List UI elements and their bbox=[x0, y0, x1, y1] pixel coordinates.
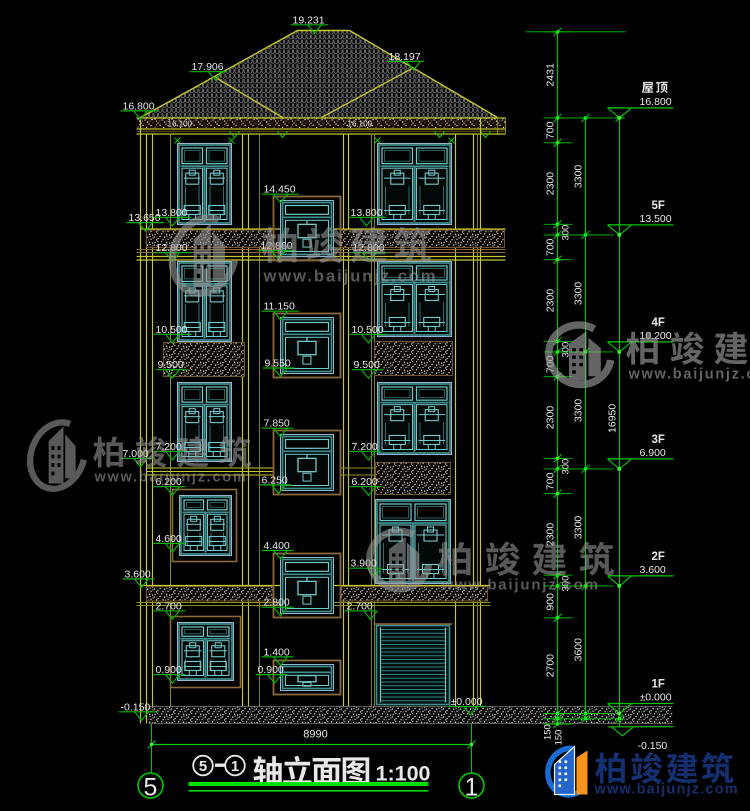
svg-text:3300: 3300 bbox=[573, 165, 585, 189]
svg-text:-0.150: -0.150 bbox=[638, 740, 668, 752]
svg-text:2F: 2F bbox=[652, 551, 665, 563]
svg-text:2431: 2431 bbox=[545, 63, 557, 87]
svg-text:3600: 3600 bbox=[573, 638, 585, 662]
svg-text:700: 700 bbox=[545, 472, 557, 490]
svg-text:16.100: 16.100 bbox=[348, 120, 373, 129]
svg-text:2300: 2300 bbox=[545, 289, 557, 313]
svg-text:3F: 3F bbox=[652, 434, 665, 446]
svg-text:3300: 3300 bbox=[573, 516, 585, 540]
svg-text:6.900: 6.900 bbox=[640, 447, 666, 459]
svg-text:700: 700 bbox=[545, 121, 557, 139]
svg-text:900: 900 bbox=[545, 593, 557, 611]
svg-text:5F: 5F bbox=[652, 200, 665, 212]
svg-text:www.baijunjz.com: www.baijunjz.com bbox=[441, 577, 600, 594]
svg-text:3300: 3300 bbox=[573, 399, 585, 423]
svg-text:2300: 2300 bbox=[545, 172, 557, 196]
svg-text:150: 150 bbox=[543, 724, 554, 740]
svg-text:300: 300 bbox=[561, 225, 572, 241]
svg-text:1: 1 bbox=[231, 758, 239, 775]
svg-text:150: 150 bbox=[554, 730, 565, 746]
svg-text:700: 700 bbox=[545, 238, 557, 256]
svg-text:1: 1 bbox=[465, 774, 479, 802]
svg-text:3300: 3300 bbox=[573, 282, 585, 306]
svg-text:16.100: 16.100 bbox=[168, 120, 193, 129]
svg-text:www.baijunjz.com: www.baijunjz.com bbox=[263, 268, 438, 286]
svg-text:16950: 16950 bbox=[607, 404, 619, 433]
svg-text:13.500: 13.500 bbox=[640, 213, 672, 225]
svg-text:300: 300 bbox=[561, 459, 572, 475]
svg-text:2700: 2700 bbox=[545, 654, 557, 678]
svg-text:3.600: 3.600 bbox=[640, 564, 666, 576]
svg-text:www.baijunjz.com: www.baijunjz.com bbox=[594, 782, 739, 798]
svg-text:1F: 1F bbox=[652, 679, 665, 691]
svg-text:2300: 2300 bbox=[545, 406, 557, 430]
svg-text:www.baijunjz.com: www.baijunjz.com bbox=[94, 470, 248, 486]
svg-text:±0.000: ±0.000 bbox=[640, 692, 672, 704]
svg-text:www.baijunjz.com: www.baijunjz.com bbox=[628, 367, 750, 383]
svg-text:1:100: 1:100 bbox=[376, 762, 431, 786]
svg-text:8990: 8990 bbox=[303, 729, 327, 741]
svg-text:16.800: 16.800 bbox=[640, 96, 672, 108]
svg-text:5: 5 bbox=[144, 774, 158, 802]
svg-text:5: 5 bbox=[199, 758, 207, 775]
svg-text:4F: 4F bbox=[652, 317, 665, 329]
